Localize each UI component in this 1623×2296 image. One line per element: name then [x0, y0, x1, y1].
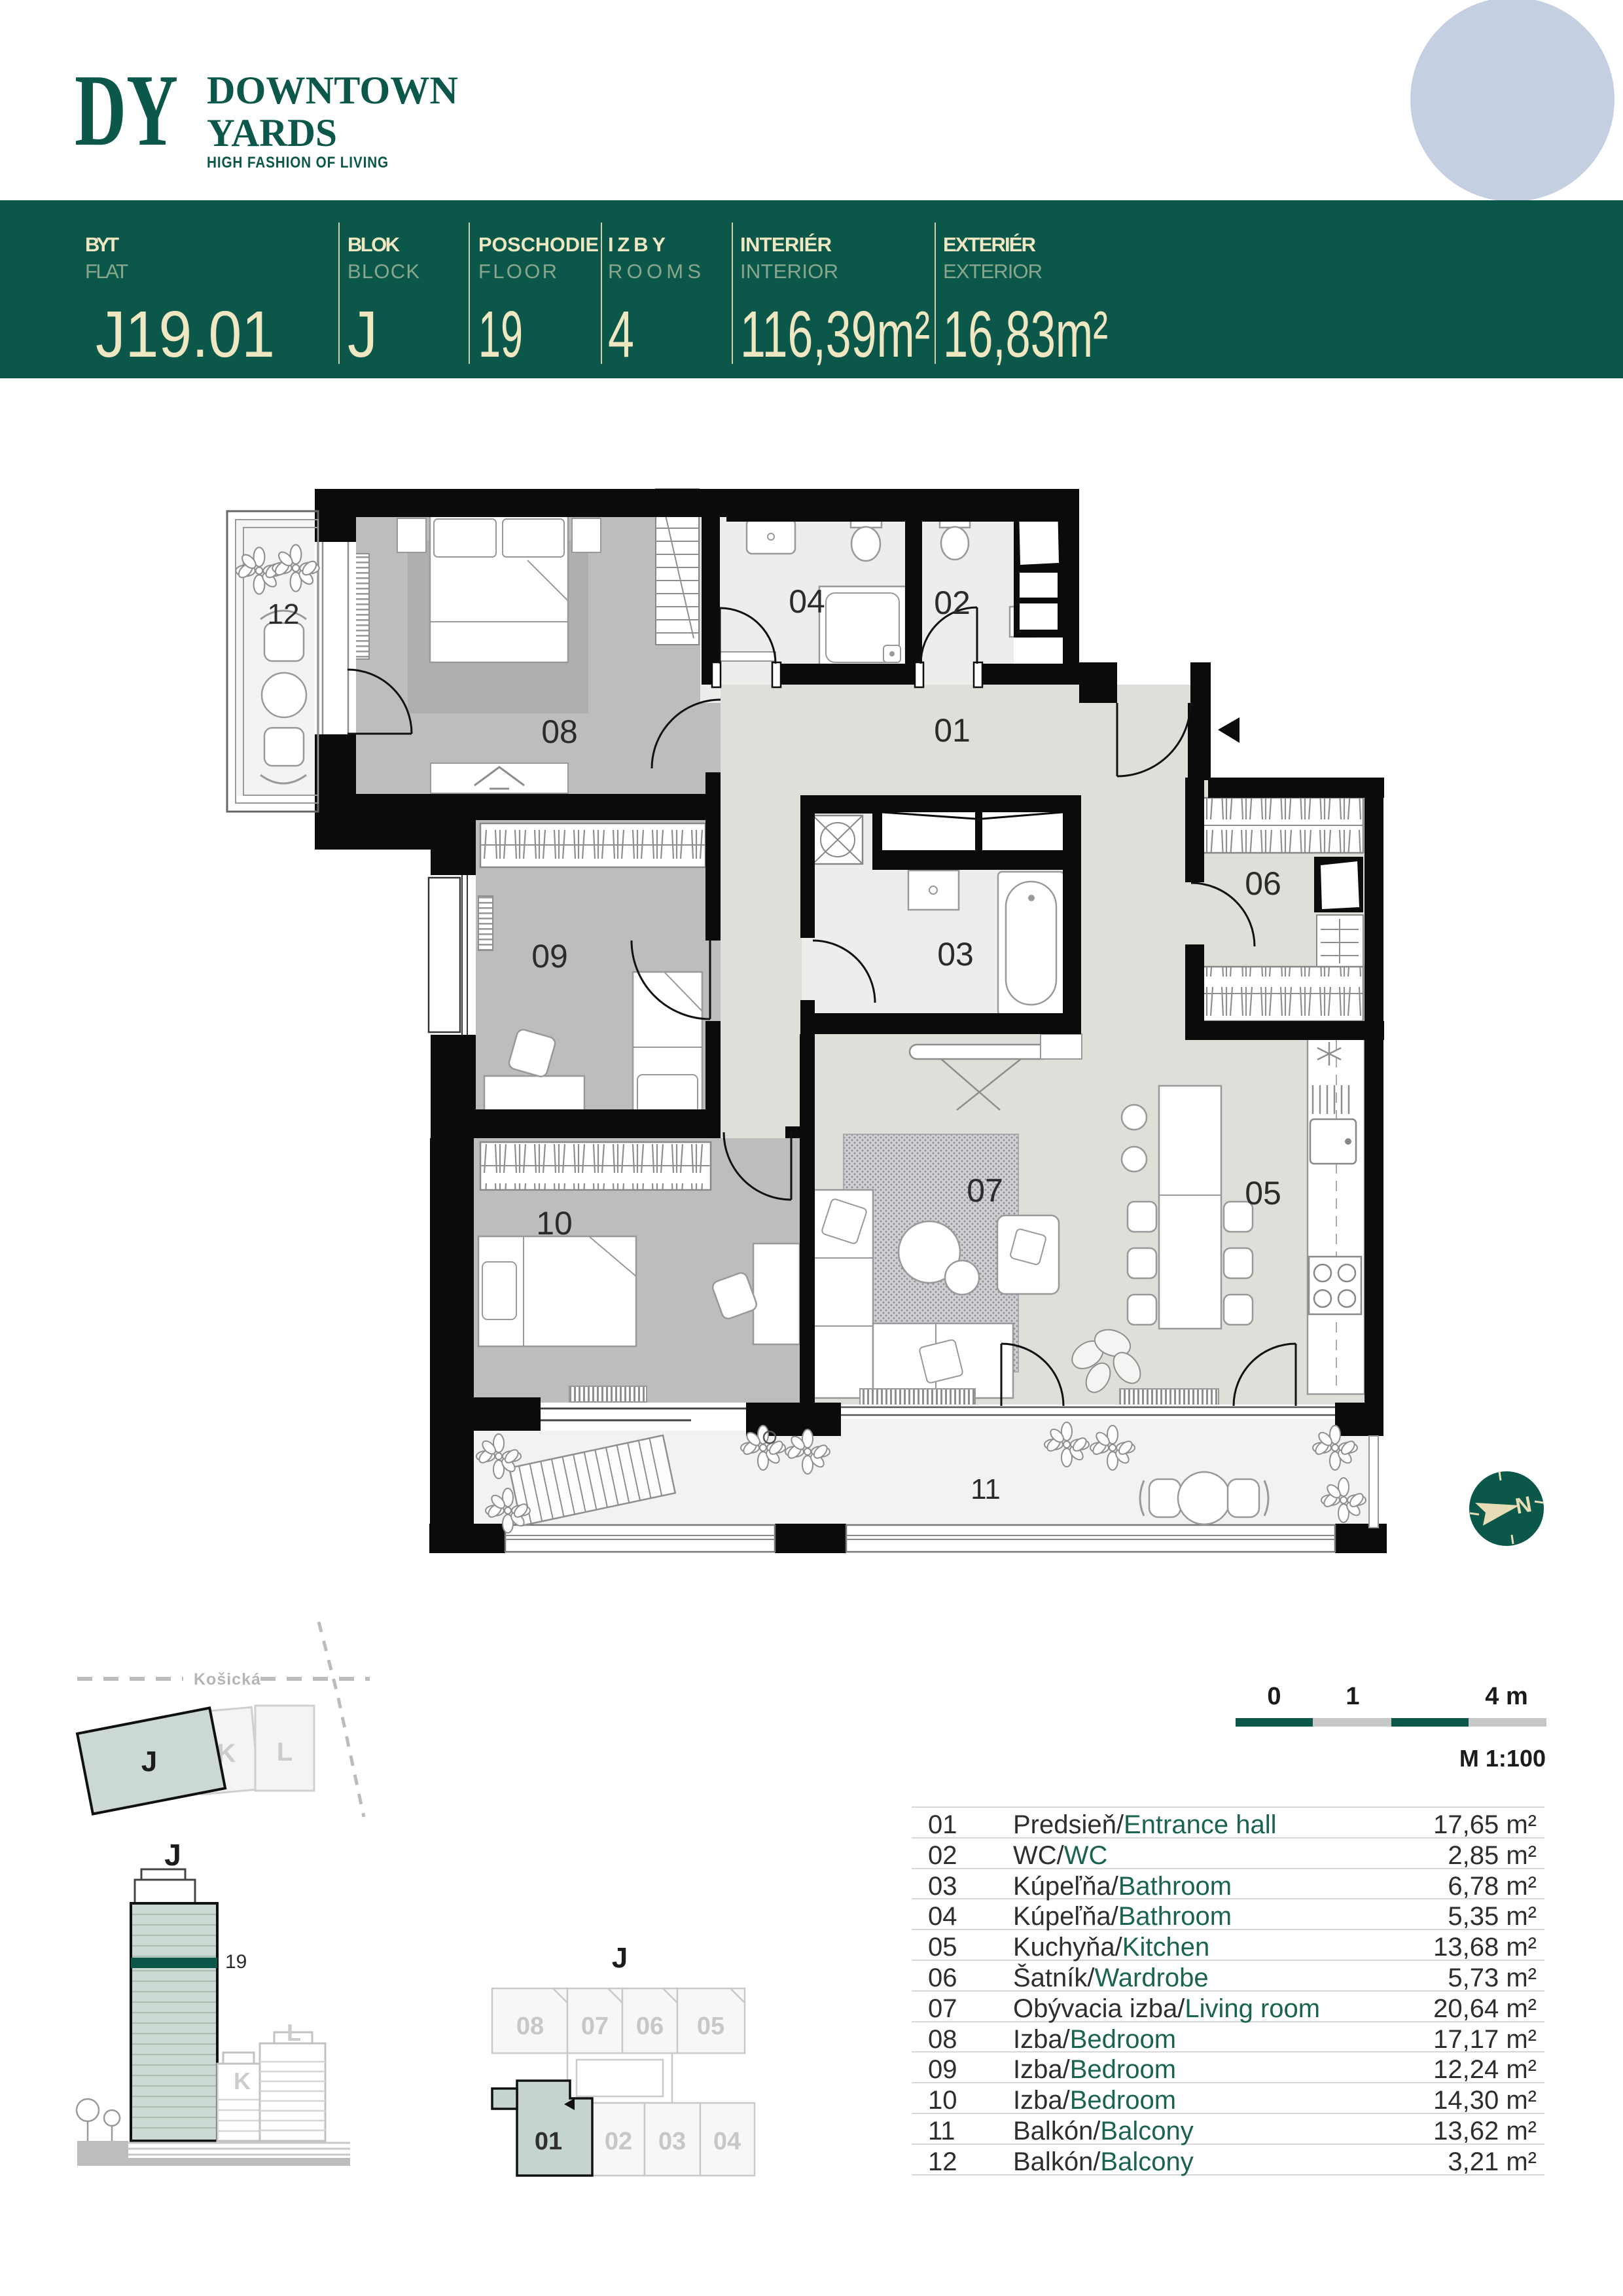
svg-text:08: 08 — [541, 713, 578, 750]
svg-text:02: 02 — [934, 584, 971, 621]
svg-text:01: 01 — [535, 2128, 562, 2155]
svg-text:11: 11 — [971, 1473, 1001, 1505]
svg-text:Kúpeľňa/Bathroom: Kúpeľňa/Bathroom — [1013, 1872, 1232, 1901]
svg-text:Kuchyňa/Kitchen: Kuchyňa/Kitchen — [1013, 1933, 1209, 1962]
svg-text:BYT: BYT — [85, 233, 119, 256]
svg-text:04: 04 — [713, 2128, 741, 2155]
svg-text:2,85 m²: 2,85 m² — [1448, 1841, 1537, 1870]
svg-text:1: 1 — [1346, 1683, 1359, 1710]
svg-text:Izba/Bedroom: Izba/Bedroom — [1013, 2025, 1176, 2054]
svg-text:DOWNTOWN: DOWNTOWN — [207, 69, 458, 112]
svg-text:J: J — [348, 298, 378, 371]
svg-text:BLOK: BLOK — [348, 233, 401, 256]
svg-text:Balkón/Balcony: Balkón/Balcony — [1013, 2147, 1194, 2176]
svg-text:K: K — [234, 2068, 251, 2094]
svg-text:03: 03 — [658, 2128, 686, 2155]
svg-text:12: 12 — [928, 2147, 957, 2176]
svg-text:06: 06 — [636, 2013, 664, 2040]
svg-text:Izba/Bedroom: Izba/Bedroom — [1013, 2055, 1176, 2084]
svg-text:J: J — [164, 1838, 181, 1872]
svg-text:06: 06 — [928, 1964, 957, 1992]
svg-text:01: 01 — [928, 1810, 957, 1839]
svg-text:Balkón/Balcony: Balkón/Balcony — [1013, 2117, 1194, 2145]
svg-text:01: 01 — [934, 712, 971, 749]
svg-text:HIGH FASHION OF LIVING: HIGH FASHION OF LIVING — [207, 154, 389, 171]
svg-text:Šatník/Wardrobe: Šatník/Wardrobe — [1013, 1963, 1209, 1992]
svg-text:J: J — [612, 1942, 628, 1974]
svg-text:04: 04 — [789, 583, 825, 620]
svg-text:Izba/Bedroom: Izba/Bedroom — [1013, 2086, 1176, 2115]
svg-text:05: 05 — [1245, 1175, 1281, 1211]
svg-text:INTERIOR: INTERIOR — [740, 260, 838, 283]
svg-text:ROOMS: ROOMS — [608, 260, 701, 283]
svg-text:03: 03 — [928, 1872, 957, 1901]
svg-text:4 m: 4 m — [1485, 1683, 1527, 1710]
svg-text:Predsieň/Entrance hall: Predsieň/Entrance hall — [1013, 1810, 1276, 1839]
svg-text:L: L — [287, 2019, 301, 2046]
svg-text:J: J — [141, 1746, 157, 1778]
svg-text:BLOCK: BLOCK — [348, 260, 419, 283]
svg-text:INTERIÉR: INTERIÉR — [740, 233, 832, 256]
svg-text:5,73 m²: 5,73 m² — [1448, 1964, 1537, 1992]
svg-text:06: 06 — [1245, 865, 1281, 902]
svg-text:0: 0 — [1267, 1683, 1281, 1710]
svg-text:13,62 m²: 13,62 m² — [1433, 2117, 1537, 2145]
svg-text:J19.01: J19.01 — [96, 298, 275, 371]
svg-text:16,83m²: 16,83m² — [943, 298, 1108, 371]
svg-text:02: 02 — [605, 2128, 632, 2155]
svg-text:10: 10 — [536, 1205, 573, 1242]
svg-text:05: 05 — [928, 1933, 957, 1962]
svg-text:09: 09 — [531, 938, 568, 975]
svg-text:11: 11 — [928, 2117, 955, 2145]
svg-text:09: 09 — [928, 2055, 957, 2084]
svg-text:19: 19 — [478, 298, 523, 371]
svg-text:5,35 m²: 5,35 m² — [1448, 1902, 1537, 1931]
svg-text:L: L — [277, 1738, 293, 1767]
svg-text:4: 4 — [608, 298, 634, 371]
svg-text:12: 12 — [268, 598, 300, 630]
svg-text:17,17 m²: 17,17 m² — [1433, 2025, 1537, 2054]
svg-text:EXTERIOR: EXTERIOR — [943, 260, 1043, 283]
svg-text:04: 04 — [928, 1902, 957, 1931]
svg-text:03: 03 — [937, 936, 974, 973]
svg-text:Obývacia izba/Living room: Obývacia izba/Living room — [1013, 1994, 1320, 2023]
svg-text:07: 07 — [928, 1994, 957, 2023]
svg-text:3,21 m²: 3,21 m² — [1448, 2147, 1537, 2176]
svg-text:17,65 m²: 17,65 m² — [1433, 1810, 1537, 1839]
svg-text:13,68 m²: 13,68 m² — [1433, 1933, 1537, 1962]
svg-text:14,30 m²: 14,30 m² — [1433, 2086, 1537, 2115]
svg-text:WC/WC: WC/WC — [1013, 1841, 1107, 1870]
svg-text:07: 07 — [967, 1172, 1003, 1209]
svg-text:19: 19 — [225, 1951, 247, 1973]
svg-text:116,39m²: 116,39m² — [740, 298, 930, 371]
svg-text:07: 07 — [581, 2013, 609, 2040]
svg-text:6,78 m²: 6,78 m² — [1448, 1872, 1537, 1901]
svg-text:02: 02 — [928, 1841, 957, 1870]
svg-text:Kúpeľňa/Bathroom: Kúpeľňa/Bathroom — [1013, 1902, 1232, 1931]
svg-text:M 1:100: M 1:100 — [1459, 1745, 1546, 1772]
svg-text:08: 08 — [928, 2025, 957, 2054]
svg-text:DY: DY — [75, 53, 178, 167]
svg-text:08: 08 — [516, 2013, 544, 2040]
svg-text:EXTERIÉR: EXTERIÉR — [943, 233, 1036, 256]
svg-text:10: 10 — [928, 2086, 957, 2115]
svg-text:Košická: Košická — [194, 1670, 261, 1689]
svg-text:FLOOR: FLOOR — [478, 260, 557, 283]
svg-text:12,24 m²: 12,24 m² — [1433, 2055, 1537, 2084]
svg-text:POSCHODIE: POSCHODIE — [478, 233, 599, 256]
svg-text:YARDS: YARDS — [207, 111, 337, 154]
svg-text:FLAT: FLAT — [85, 260, 128, 283]
svg-text:05: 05 — [697, 2013, 724, 2040]
svg-text:20,64 m²: 20,64 m² — [1433, 1994, 1537, 2023]
